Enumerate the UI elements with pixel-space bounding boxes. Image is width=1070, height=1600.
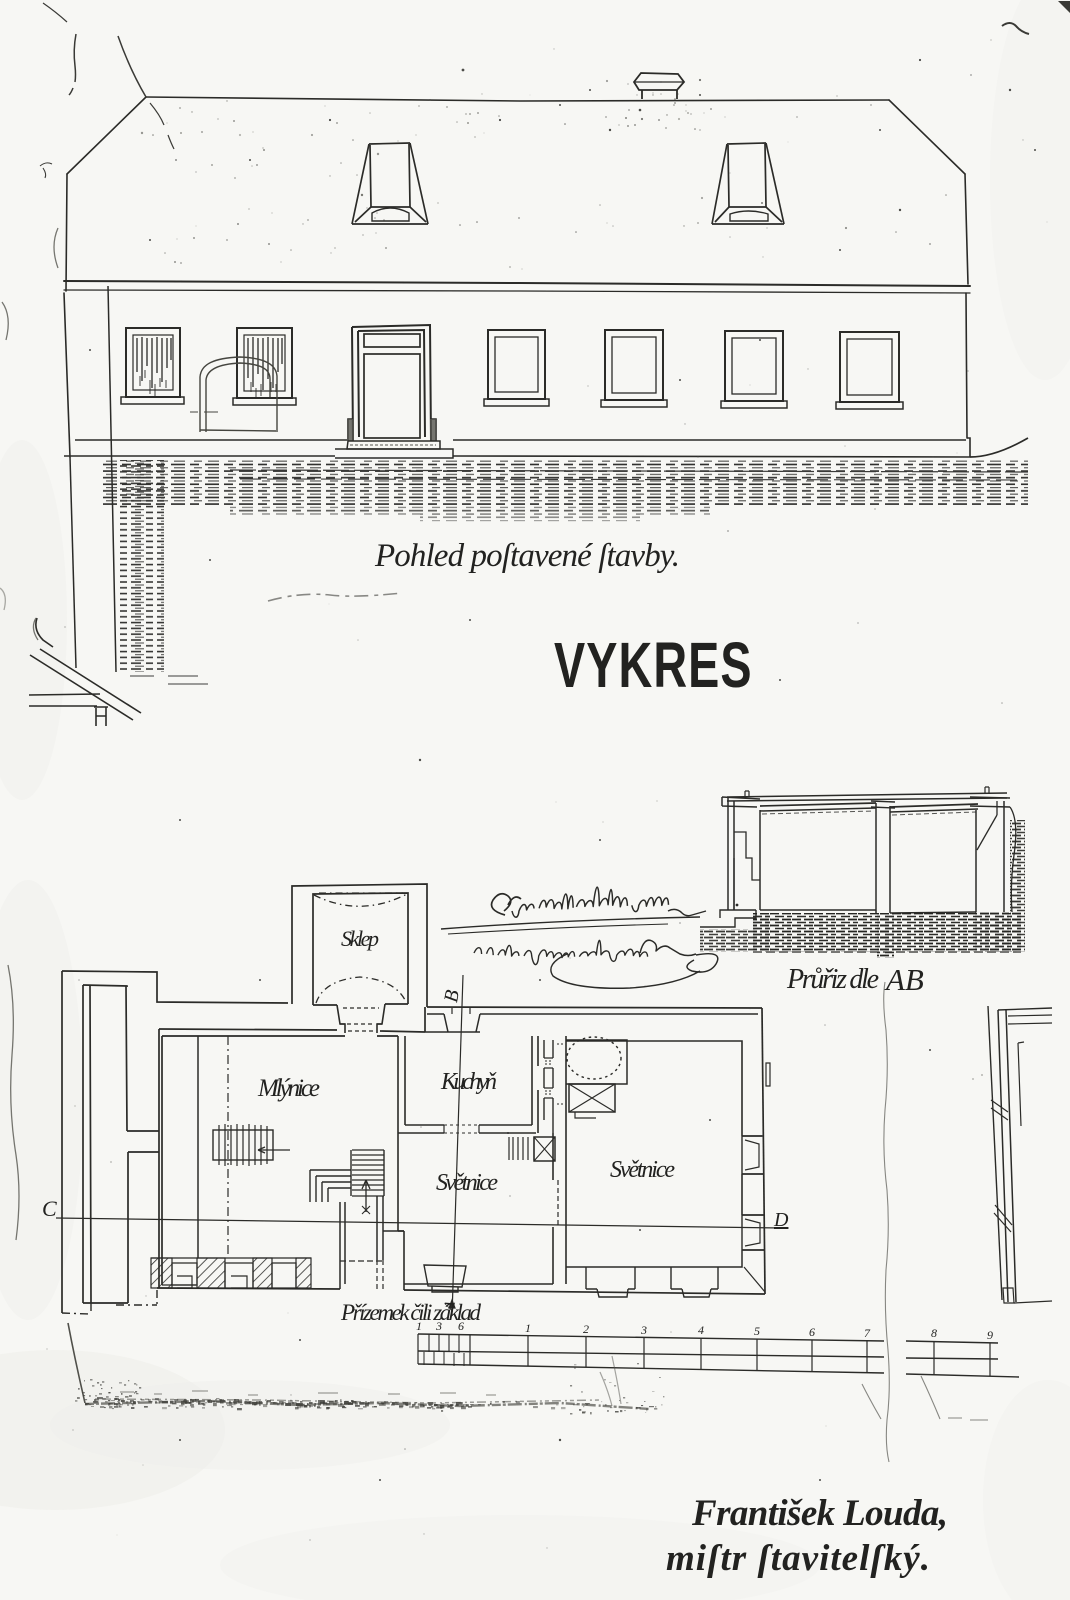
svg-text:8: 8 (931, 1326, 937, 1340)
svg-text:3: 3 (435, 1319, 442, 1333)
svg-text:3: 3 (640, 1323, 647, 1337)
svg-text:miſtr ſtavitelſký.: miſtr ſtavitelſký. (666, 1538, 930, 1579)
svg-text:C: C (42, 1196, 57, 1221)
svg-text:1: 1 (525, 1321, 531, 1335)
svg-text:Průřiz dle: Průřiz dle (786, 964, 879, 995)
svg-text:6: 6 (809, 1325, 815, 1339)
svg-text:4: 4 (698, 1323, 704, 1337)
svg-text:Kuchyň: Kuchyň (440, 1069, 497, 1095)
svg-text:7: 7 (864, 1326, 871, 1340)
svg-text:Světnice: Světnice (610, 1157, 675, 1183)
svg-text:Pohled poſtavené ſtavby.: Pohled poſtavené ſtavby. (374, 538, 680, 574)
svg-text:D: D (773, 1209, 789, 1231)
svg-text:1: 1 (416, 1319, 422, 1333)
svg-text:Světnice: Světnice (436, 1170, 498, 1196)
svg-text:František Louda,: František Louda, (691, 1493, 948, 1534)
svg-text:Sklep: Sklep (341, 926, 379, 951)
svg-text:9: 9 (987, 1328, 993, 1342)
svg-text:AB: AB (884, 962, 924, 997)
svg-text:VYKRES: VYKRES (554, 629, 753, 701)
svg-text:Mlýnice: Mlýnice (257, 1075, 320, 1102)
svg-text:2: 2 (583, 1322, 589, 1336)
svg-text:6: 6 (458, 1319, 464, 1333)
svg-text:5: 5 (754, 1324, 760, 1338)
